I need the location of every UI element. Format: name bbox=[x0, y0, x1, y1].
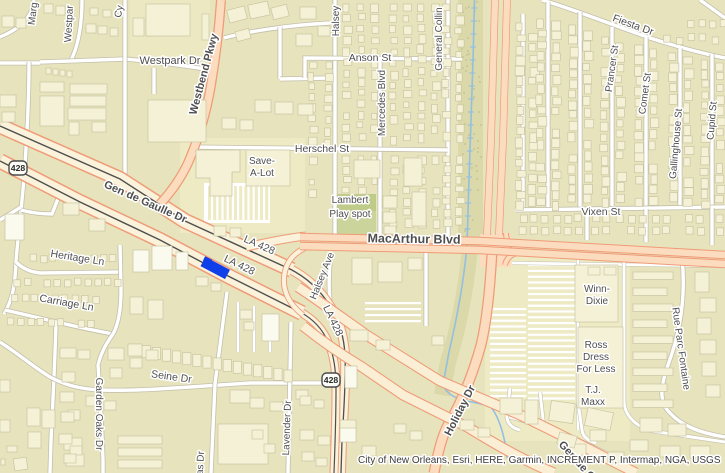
svg-text:Mercedes Blvd: Mercedes Blvd bbox=[377, 70, 388, 136]
svg-text:Dress: Dress bbox=[583, 352, 609, 363]
svg-text:Dixie: Dixie bbox=[586, 296, 609, 307]
svg-text:Vixen St: Vixen St bbox=[582, 206, 621, 218]
svg-text:Anson St: Anson St bbox=[349, 52, 392, 64]
svg-text:Winn-: Winn- bbox=[584, 284, 610, 295]
svg-text:Halsey: Halsey bbox=[331, 6, 342, 37]
svg-text:Lavender Dr: Lavender Dr bbox=[281, 400, 294, 456]
svg-text:Save-: Save- bbox=[249, 156, 275, 167]
svg-text:City of New Orleans, Esri, HER: City of New Orleans, Esri, HERE, Garmin,… bbox=[358, 455, 721, 466]
svg-text:Westpar: Westpar bbox=[63, 4, 76, 42]
svg-text:General Collin: General Collin bbox=[434, 7, 445, 70]
svg-text:Lambert: Lambert bbox=[332, 195, 369, 206]
svg-text:For Less: For Less bbox=[577, 364, 616, 375]
svg-text:Cy: Cy bbox=[113, 5, 126, 19]
svg-text:428: 428 bbox=[11, 163, 26, 173]
svg-text:428: 428 bbox=[324, 375, 339, 385]
svg-text:Texas Dr: Texas Dr bbox=[194, 450, 207, 473]
svg-text:Garden Oaks Dr: Garden Oaks Dr bbox=[93, 378, 104, 451]
svg-text:Maxx: Maxx bbox=[581, 397, 605, 408]
svg-text:Play spot: Play spot bbox=[329, 209, 370, 220]
svg-text:T.J.: T.J. bbox=[585, 385, 601, 396]
svg-text:A-Lot: A-Lot bbox=[250, 168, 274, 179]
svg-text:Ross: Ross bbox=[585, 340, 608, 351]
svg-text:Westpark Dr: Westpark Dr bbox=[140, 55, 201, 67]
svg-text:Herschel St: Herschel St bbox=[295, 143, 349, 155]
svg-text:MacArthur Blvd: MacArthur Blvd bbox=[367, 231, 460, 247]
